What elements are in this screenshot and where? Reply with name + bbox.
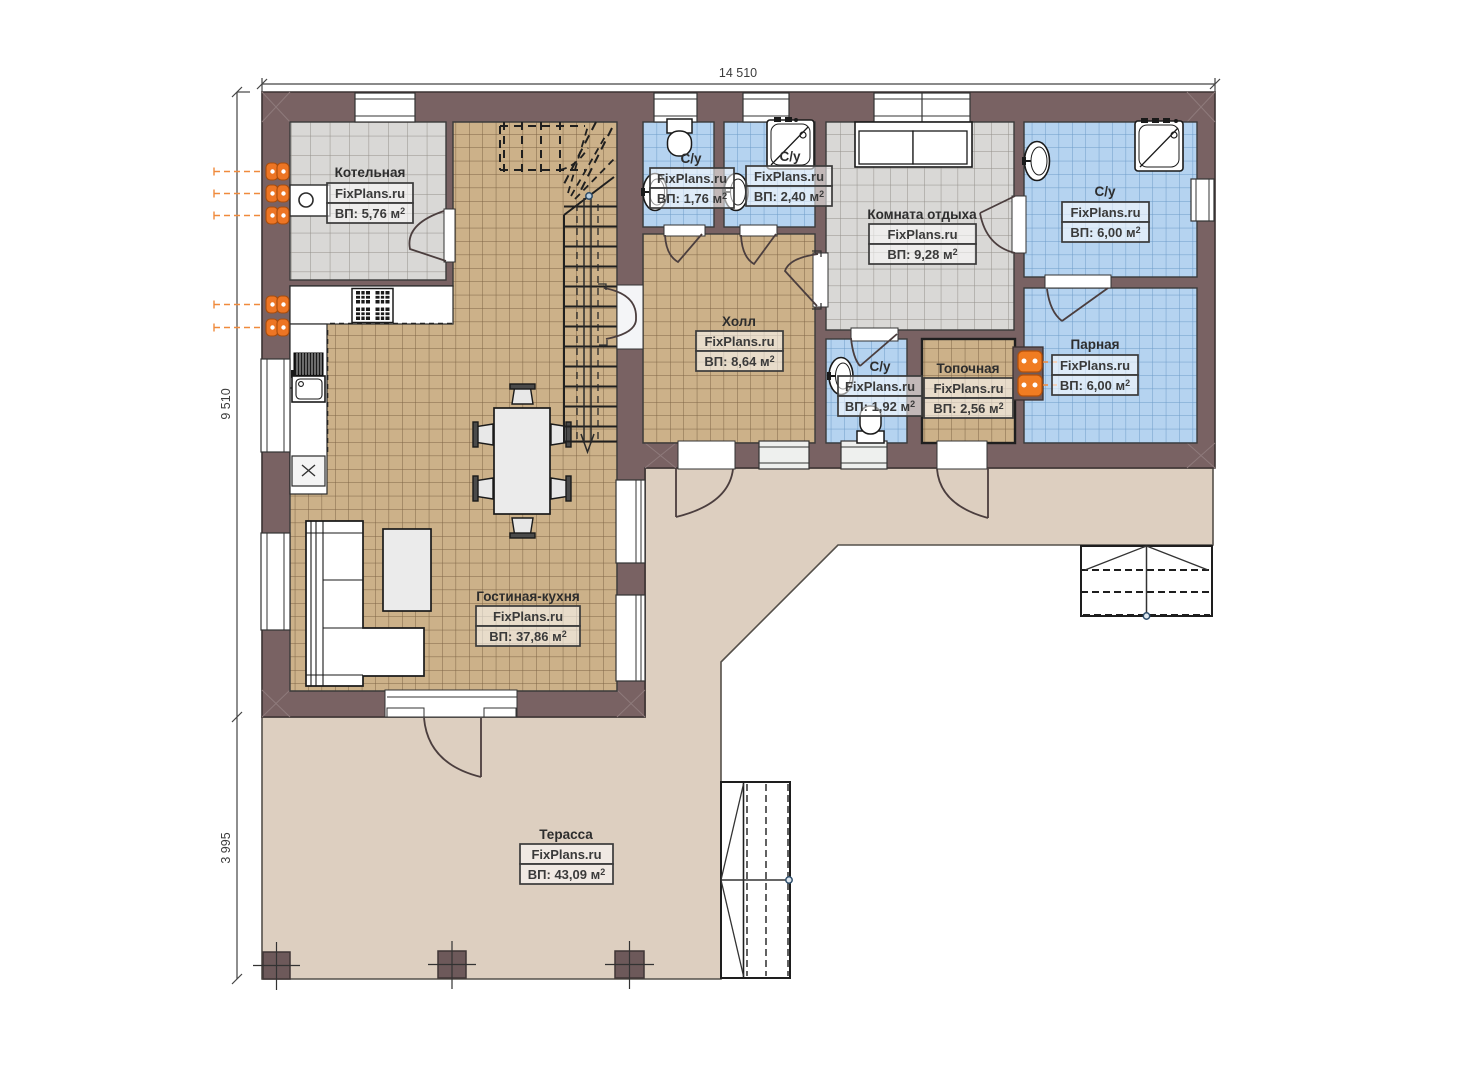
svg-text:FixPlans.ru: FixPlans.ru xyxy=(704,334,774,349)
svg-text:Парная: Парная xyxy=(1071,337,1120,352)
svg-text:Комната отдыха: Комната отдыха xyxy=(867,207,977,222)
svg-text:ВП: 1,76 м2: ВП: 1,76 м2 xyxy=(657,191,727,206)
svg-text:FixPlans.ru: FixPlans.ru xyxy=(845,379,915,394)
svg-text:FixPlans.ru: FixPlans.ru xyxy=(887,227,957,242)
svg-text:FixPlans.ru: FixPlans.ru xyxy=(657,171,727,186)
svg-text:FixPlans.ru: FixPlans.ru xyxy=(1070,205,1140,220)
svg-text:FixPlans.ru: FixPlans.ru xyxy=(531,847,601,862)
svg-text:Котельная: Котельная xyxy=(335,165,406,180)
svg-text:С/у: С/у xyxy=(779,149,801,164)
svg-text:ВП: 43,09 м2: ВП: 43,09 м2 xyxy=(528,867,605,882)
svg-text:Гостиная-кухня: Гостиная-кухня xyxy=(476,589,579,604)
svg-text:Терасса: Терасса xyxy=(539,827,593,842)
svg-text:С/у: С/у xyxy=(1094,184,1116,199)
svg-text:Топочная: Топочная xyxy=(936,361,999,376)
svg-text:14 510: 14 510 xyxy=(719,66,757,80)
svg-text:ВП: 37,86 м2: ВП: 37,86 м2 xyxy=(489,629,566,644)
svg-text:FixPlans.ru: FixPlans.ru xyxy=(493,609,563,624)
svg-text:ВП: 9,28 м2: ВП: 9,28 м2 xyxy=(887,247,957,262)
svg-text:FixPlans.ru: FixPlans.ru xyxy=(933,381,1003,396)
svg-text:ВП: 5,76 м2: ВП: 5,76 м2 xyxy=(335,206,405,221)
svg-text:ВП: 6,00 м2: ВП: 6,00 м2 xyxy=(1060,378,1130,393)
svg-text:3 995: 3 995 xyxy=(219,832,233,863)
svg-text:FixPlans.ru: FixPlans.ru xyxy=(335,186,405,201)
svg-text:FixPlans.ru: FixPlans.ru xyxy=(1060,358,1130,373)
svg-text:FixPlans.ru: FixPlans.ru xyxy=(754,169,824,184)
svg-text:ВП: 8,64 м2: ВП: 8,64 м2 xyxy=(704,354,774,369)
svg-text:Холл: Холл xyxy=(722,314,756,329)
svg-text:ВП: 6,00 м2: ВП: 6,00 м2 xyxy=(1070,225,1140,240)
svg-text:ВП: 2,40 м2: ВП: 2,40 м2 xyxy=(754,189,824,204)
svg-text:С/у: С/у xyxy=(680,151,702,166)
svg-text:ВП: 2,56 м2: ВП: 2,56 м2 xyxy=(933,401,1003,416)
svg-text:9 510: 9 510 xyxy=(219,388,233,419)
svg-text:С/у: С/у xyxy=(869,359,891,374)
svg-text:ВП: 1,92 м2: ВП: 1,92 м2 xyxy=(845,399,915,414)
